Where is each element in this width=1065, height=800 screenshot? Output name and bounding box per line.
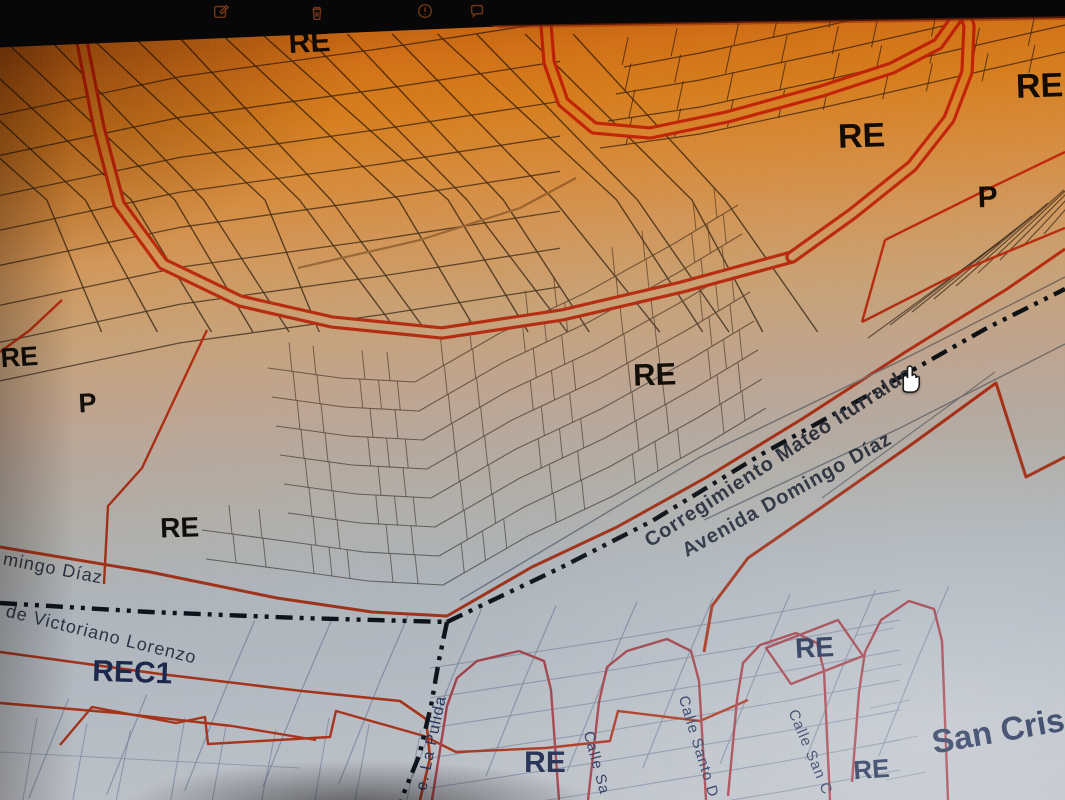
chat-icon[interactable] bbox=[468, 2, 486, 20]
zone-label: RE bbox=[524, 746, 566, 779]
zone-label: RE bbox=[852, 753, 890, 785]
trash-icon[interactable] bbox=[308, 4, 326, 22]
zoning-map-canvas[interactable]: REREREPREPREREREC1RERERESan CrisCorregim… bbox=[0, 0, 1065, 800]
alert-icon[interactable] bbox=[416, 2, 434, 20]
zone-label: RE bbox=[160, 511, 200, 543]
zone-label: RE bbox=[837, 116, 886, 156]
zone-label: P bbox=[78, 388, 98, 419]
edit-icon[interactable] bbox=[212, 2, 230, 20]
zone-label: RE bbox=[0, 341, 39, 374]
zone-label: P bbox=[977, 181, 998, 215]
zone-label: RE bbox=[794, 631, 834, 664]
screen-photo: REREREPREPREREREC1RERERESan CrisCorregim… bbox=[0, 0, 1065, 800]
zone-label: REC1 bbox=[92, 655, 173, 691]
zone-label: RE bbox=[1015, 66, 1064, 106]
zone-label: RE bbox=[632, 356, 676, 392]
